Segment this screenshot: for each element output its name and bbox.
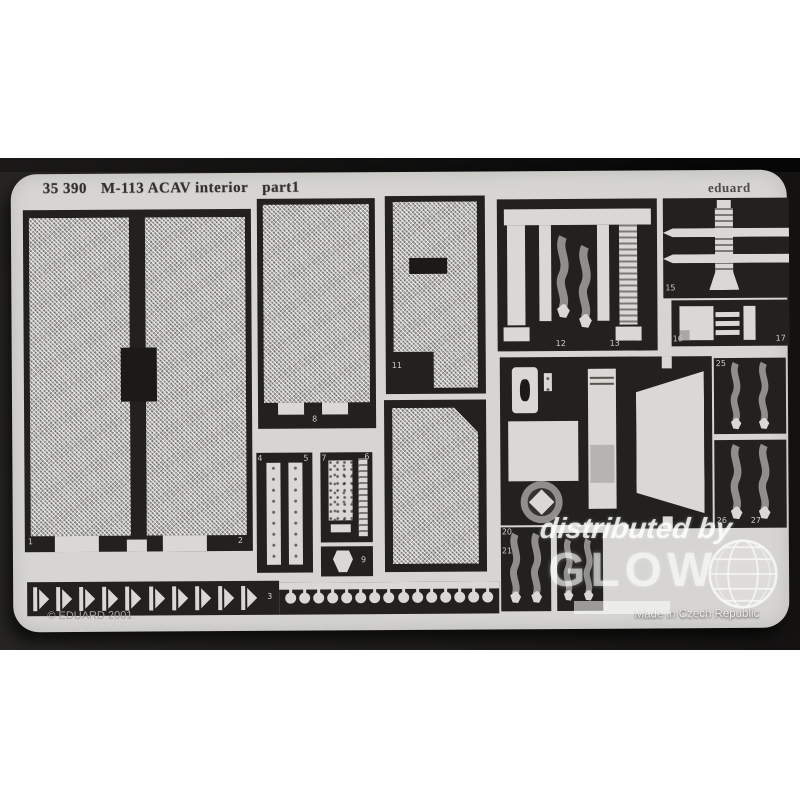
hinge-arrow — [178, 588, 188, 608]
hinge-part — [126, 587, 142, 611]
hinge-bar — [56, 587, 60, 611]
opening-seatbelts-extra — [557, 533, 603, 611]
part-number: 2 — [238, 537, 243, 545]
opening-part-9: 9 — [321, 546, 373, 576]
rivet-head-part — [440, 588, 451, 608]
mount-flare — [709, 272, 739, 290]
part-number: 15 — [665, 284, 675, 292]
part-number: 26 — [717, 517, 727, 525]
small-oval-strip — [544, 373, 552, 391]
brand-logo: eduard — [708, 180, 751, 196]
opening-seat-parts — [500, 357, 641, 526]
hinge-arrow — [132, 589, 142, 609]
frame-bar — [539, 225, 552, 321]
rivet-head-part — [285, 589, 296, 609]
opening-panel-8: 8 — [257, 198, 376, 429]
arrow-rod — [663, 254, 789, 264]
hinge-arrow — [247, 588, 257, 608]
hinge-arrow — [201, 588, 211, 608]
page: { "photo": { "header": { "catalog": "35 … — [0, 0, 800, 800]
frame-bar — [597, 225, 610, 321]
panel-cutout — [121, 347, 157, 401]
hinge-part — [218, 586, 234, 610]
rivet-head-part — [341, 588, 352, 608]
part-number: 7 — [321, 454, 326, 462]
comb-strip — [743, 306, 755, 340]
opening-panel-11: 11 — [385, 195, 486, 394]
bracket-part-9 — [333, 550, 353, 572]
attachment-tab — [127, 540, 147, 552]
made-in-text: Made in Czech Republic — [393, 608, 759, 622]
opening-seatbelts-20-21: 20 21 — [501, 527, 552, 611]
set-title: M-113 ACAV interior — [101, 180, 248, 197]
part-number: 20 — [502, 528, 512, 536]
textured-plate-7 — [328, 460, 352, 520]
copyright-text: © EDUARD 2001 — [47, 610, 132, 623]
rivet-strip-5 — [288, 463, 303, 565]
right-column — [619, 225, 638, 325]
seatbelt-part — [581, 537, 596, 603]
mesh-panel-14 — [392, 408, 479, 565]
attachment-tab — [163, 535, 207, 551]
opening-seatbelts-25: 25 — [714, 358, 786, 434]
part-number: 4 — [257, 455, 262, 463]
photoetch-fret: 35 390M-113 ACAV interiorpart1 eduard 1 … — [11, 170, 790, 633]
rivet-head-part — [370, 588, 381, 608]
opening-parts-7-6: 7 6 — [320, 452, 373, 542]
hinge-part — [241, 586, 257, 610]
seatbelt-part — [726, 362, 746, 430]
set-part: part1 — [262, 180, 300, 196]
opening-strips-4-5: 4 5 — [256, 453, 313, 573]
part-number: 8 — [312, 416, 317, 424]
part-number: 12 — [556, 340, 566, 348]
seatbelt-part — [507, 531, 524, 605]
rivet-head-part — [327, 588, 338, 608]
ring-part — [520, 481, 562, 523]
seatbelt-part — [754, 362, 774, 430]
part-number: 27 — [751, 517, 761, 525]
strip-line — [590, 383, 614, 385]
part-number: 3 — [267, 593, 272, 601]
hinge-bar — [172, 586, 176, 610]
seatbelt-part — [575, 241, 596, 333]
seatbelt-part — [726, 444, 746, 520]
left-foot — [504, 327, 530, 341]
top-rail — [504, 208, 651, 225]
strip-line — [590, 377, 614, 379]
fret-header-text: 35 390M-113 ACAV interiorpart1 — [43, 180, 314, 199]
opening-cross-mount: 15 — [663, 198, 790, 299]
trapezoid-panel — [636, 368, 705, 516]
hinge-part — [33, 587, 49, 611]
hinge-bar — [33, 587, 37, 611]
rivet-head-part — [355, 588, 366, 608]
opening-seatbelts-26-27: 26 27 — [714, 440, 787, 528]
opening-bracket-frame: 12 13 — [497, 198, 658, 351]
part-number: 5 — [303, 455, 308, 463]
hinge-bar — [126, 587, 130, 611]
arrow-rod — [663, 228, 789, 238]
rivet-head-part — [482, 587, 493, 607]
seat-base-plate — [508, 421, 578, 481]
attachment-tab — [322, 402, 348, 414]
hinge-arrow — [155, 588, 165, 608]
mesh-panel-1 — [29, 218, 131, 537]
part-number: 6 — [364, 453, 369, 461]
mesh-panel-11-lower — [434, 352, 478, 388]
product-photo: 35 390M-113 ACAV interiorpart1 eduard 1 … — [0, 158, 800, 650]
rivet-head-part — [412, 588, 423, 608]
hinge-bar — [241, 586, 245, 610]
detail-strip — [588, 369, 617, 509]
hinge-bar — [195, 586, 199, 610]
hatch-frame — [512, 367, 538, 413]
rivet-head-part — [426, 588, 437, 608]
hinge-part — [172, 586, 188, 610]
part-number: 17 — [776, 335, 786, 343]
hinge-bar — [149, 587, 153, 611]
seatbelt-part — [561, 537, 576, 603]
part-number: 13 — [610, 340, 620, 348]
hinge-arrow — [224, 588, 234, 608]
rivet-head-part — [468, 588, 479, 608]
part-number: 11 — [392, 362, 402, 370]
small-bar — [331, 524, 351, 532]
strip-perforations — [590, 445, 614, 483]
mesh-panel-8 — [263, 204, 370, 403]
seatbelt-part — [553, 231, 574, 323]
opening-panel-14 — [384, 399, 487, 572]
rivet-head-part — [454, 588, 465, 608]
hatch-frame-hole — [520, 379, 530, 401]
seatbelt-part — [754, 444, 774, 520]
part-number: 25 — [716, 360, 726, 368]
opening-comb-bracket: 16 17 — [671, 300, 789, 347]
hinge-bar — [218, 586, 222, 610]
hinge-arrow — [85, 589, 95, 609]
hinge-part — [102, 587, 118, 611]
hinge-bar — [102, 587, 106, 611]
mesh-panel-11 — [393, 202, 478, 353]
hinge-arrow — [62, 589, 72, 609]
part-number: 16 — [673, 335, 683, 343]
hinge-arrow — [108, 589, 118, 609]
attachment-tab — [55, 536, 99, 552]
part-number: 21 — [502, 547, 512, 555]
rivet-head-part — [313, 588, 324, 608]
part-number: 1 — [28, 538, 33, 546]
hinge-part — [195, 586, 211, 610]
catalog-number: 35 390 — [43, 181, 87, 197]
attachment-tab — [278, 403, 304, 415]
rivet-head-part — [384, 588, 395, 608]
comb-tooth — [716, 321, 740, 326]
comb-tooth — [716, 330, 740, 335]
hinge-part — [79, 587, 95, 611]
stem — [662, 356, 672, 368]
left-column — [507, 225, 526, 325]
comb-tooth — [715, 312, 739, 317]
mount-body — [715, 208, 733, 274]
opening-trapezoid-panel — [628, 356, 713, 529]
hinge-part — [56, 587, 72, 611]
stem — [663, 516, 673, 528]
hinge-bar — [79, 587, 83, 611]
opening-floor-panels: 1 2 — [23, 209, 253, 552]
mesh-panel-2 — [145, 217, 247, 536]
panel-slot — [409, 258, 447, 274]
hinge-arrow — [39, 589, 49, 609]
hinge-row — [33, 586, 257, 611]
rivet-head-part — [398, 588, 409, 608]
part-number: 9 — [361, 556, 366, 564]
rivet-head-part — [299, 589, 310, 609]
slim-strip-6 — [358, 458, 367, 536]
seatbelt-part — [528, 531, 545, 605]
hinge-part — [149, 586, 165, 610]
rivet-strip-4 — [266, 463, 281, 565]
rivet-row — [285, 587, 493, 608]
